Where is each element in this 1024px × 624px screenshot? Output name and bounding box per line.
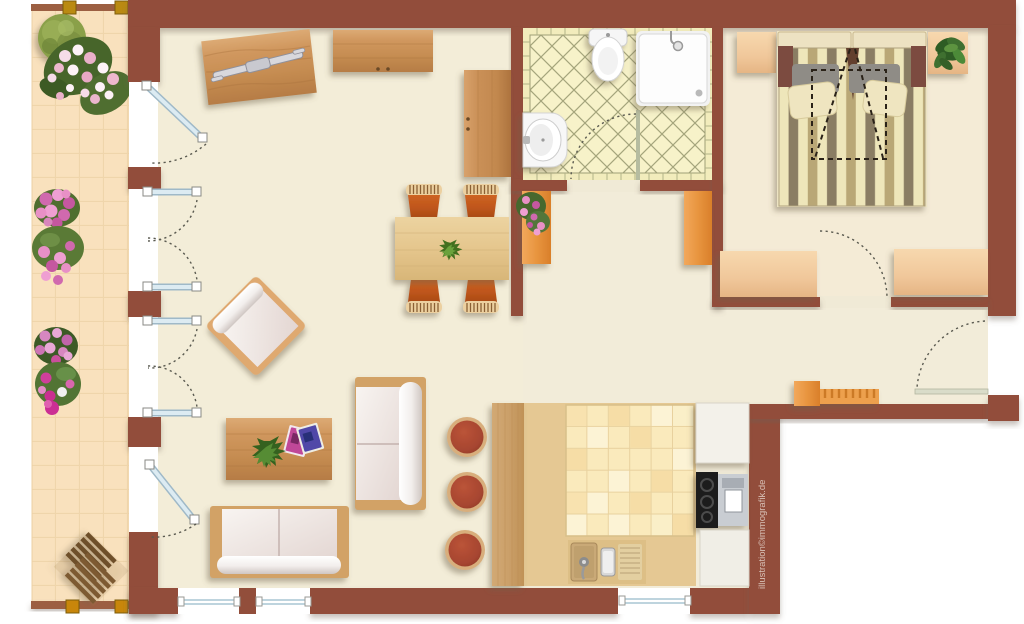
svg-text:illustration©immografik.de: illustration©immografik.de <box>757 480 768 589</box>
